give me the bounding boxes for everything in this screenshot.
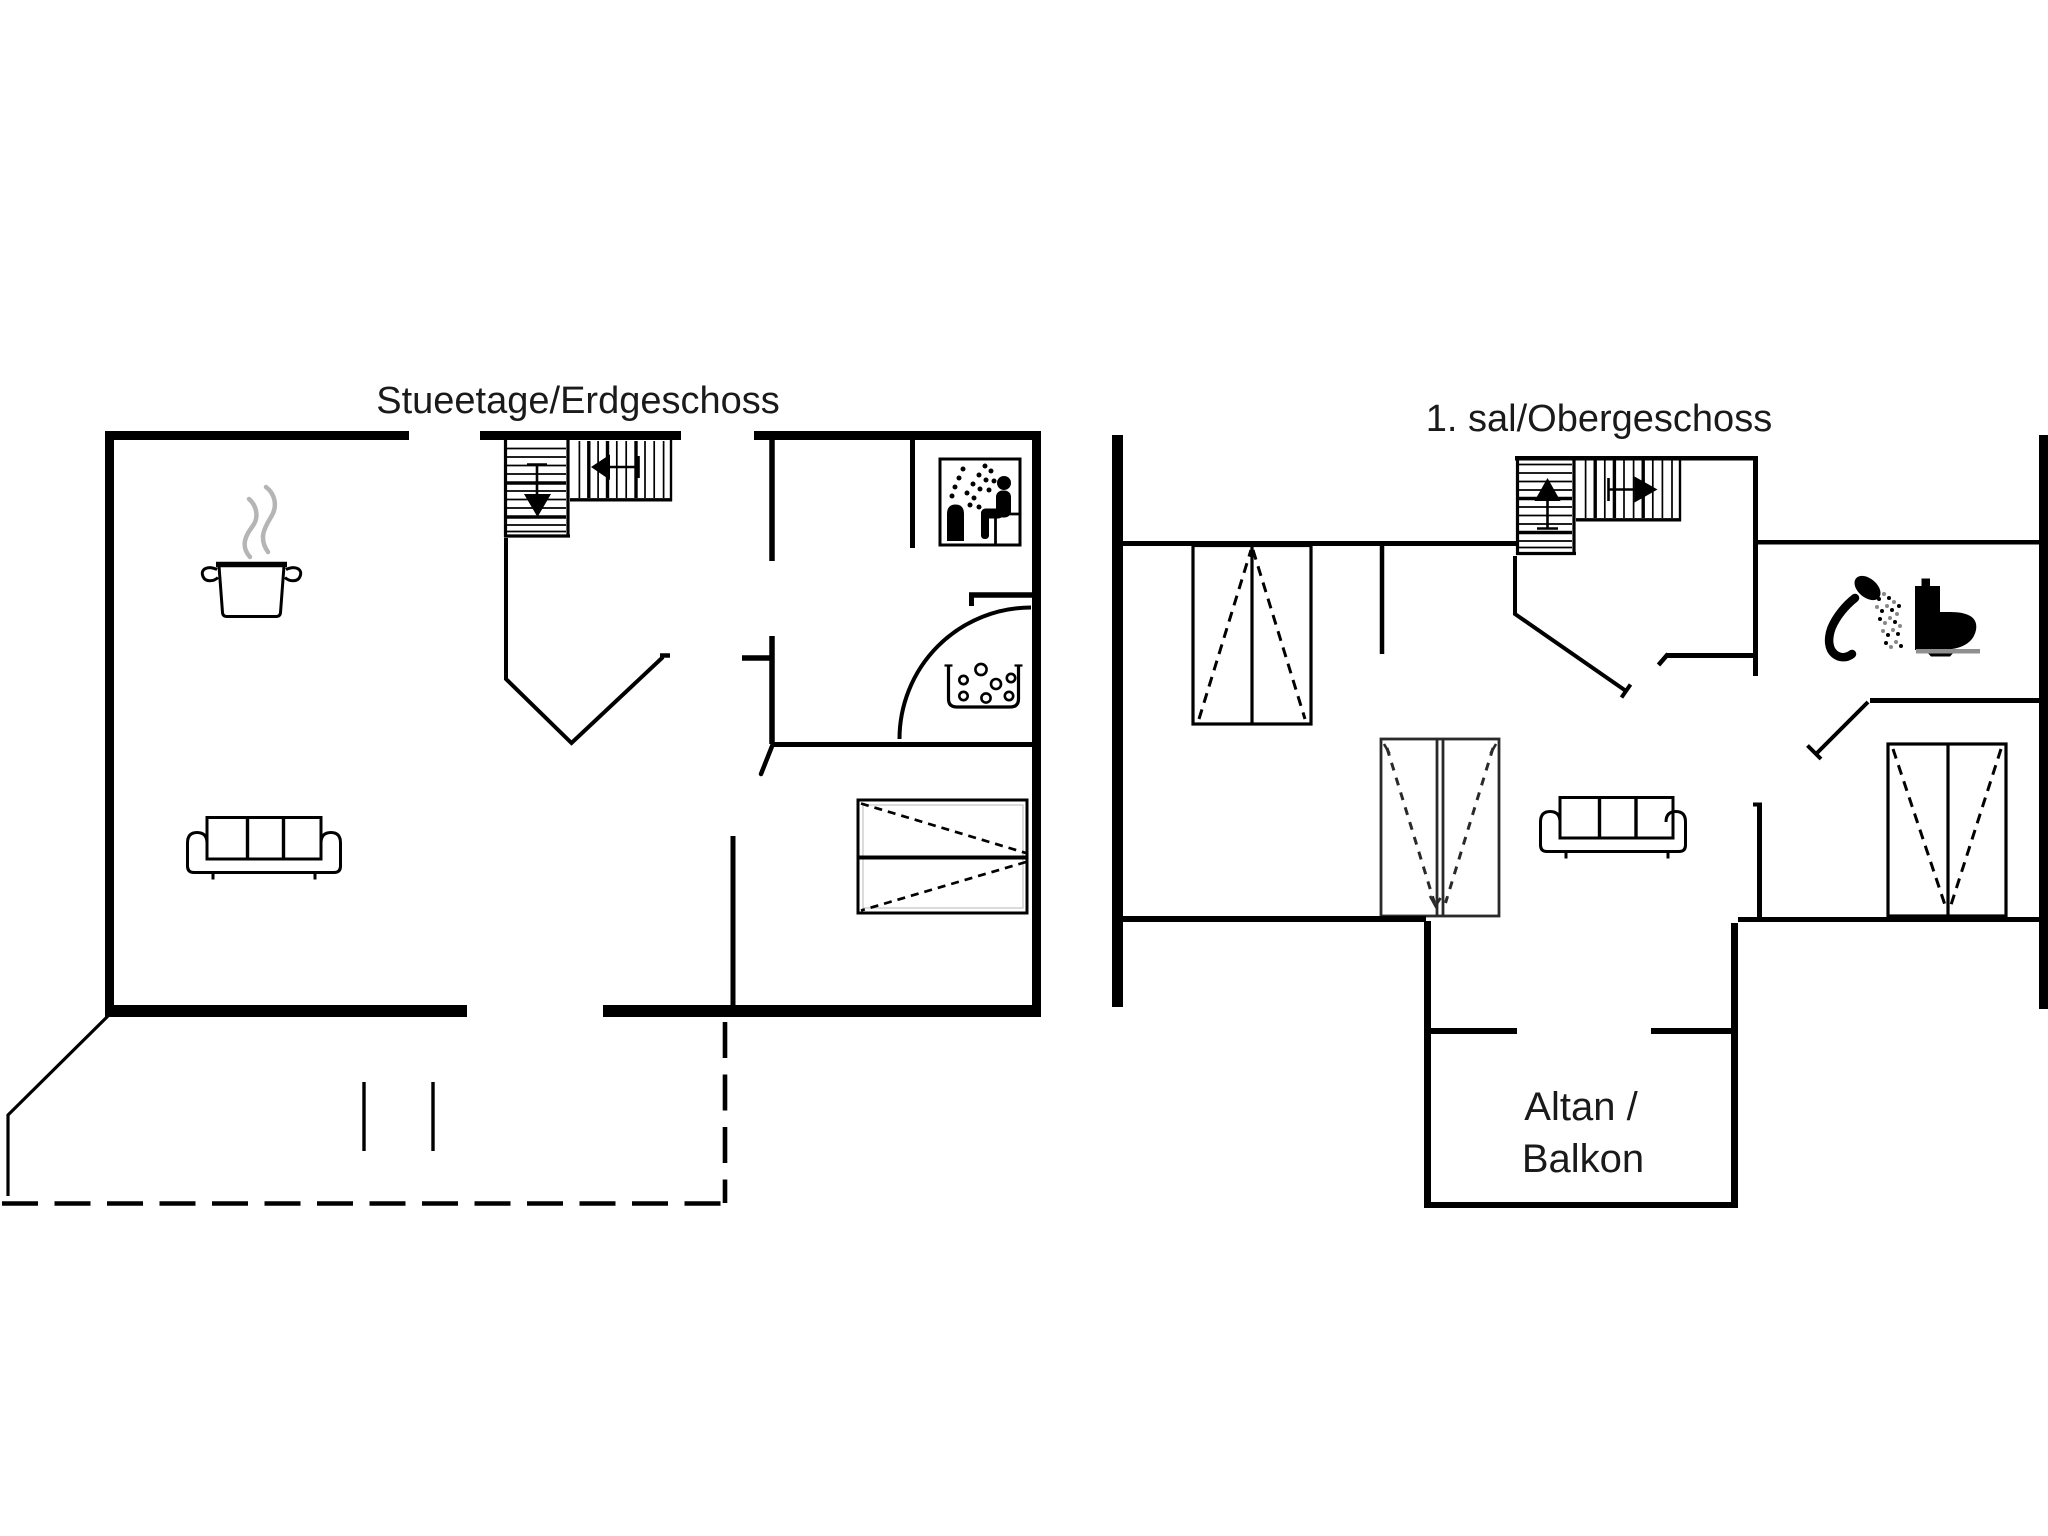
svg-text:1. sal/Obergeschoss: 1. sal/Obergeschoss (1426, 398, 1772, 440)
svg-text:Stueetage/Erdgeschoss: Stueetage/Erdgeschoss (376, 380, 780, 422)
svg-text:Altan /: Altan / (1524, 1085, 1638, 1129)
svg-text:Balkon: Balkon (1522, 1137, 1644, 1181)
